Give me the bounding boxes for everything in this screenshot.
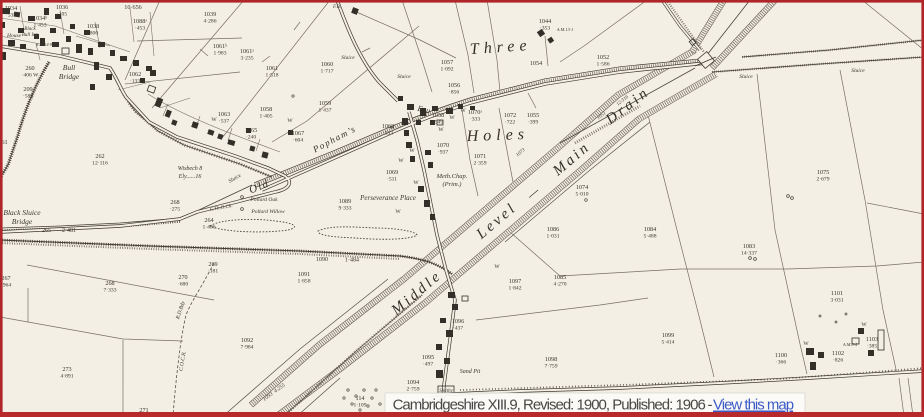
- svg-text:W: W: [494, 264, 500, 270]
- svg-text:Bridge: Bridge: [59, 72, 80, 81]
- svg-text:W: W: [803, 341, 809, 347]
- svg-text:House: House: [6, 33, 22, 39]
- svg-text:1061ᵇ: 1061ᵇ: [213, 43, 227, 50]
- svg-text:·680: ·680: [178, 282, 188, 288]
- svg-text:·497: ·497: [423, 362, 433, 368]
- svg-text:2·481: 2·481: [62, 228, 76, 234]
- svg-text:1103: 1103: [866, 336, 878, 343]
- svg-text:1034: 1034: [5, 5, 17, 12]
- svg-text:·366: ·366: [776, 360, 786, 366]
- svg-text:·133: ·133: [130, 79, 140, 85]
- svg-text:1·453: 1·453: [33, 23, 46, 29]
- svg-text:Sluice: Sluice: [739, 74, 753, 80]
- svg-text:10·656: 10·656: [124, 4, 142, 11]
- svg-text:1084: 1084: [644, 226, 656, 233]
- svg-text:Sluice: Sluice: [397, 74, 411, 80]
- svg-text:1058: 1058: [260, 106, 272, 113]
- svg-text:1060: 1060: [321, 61, 333, 68]
- svg-text:1058: 1058: [432, 112, 444, 119]
- svg-text:·181: ·181: [208, 269, 218, 275]
- svg-text:W: W: [211, 117, 217, 123]
- svg-text:F.B.: F.B.: [332, 5, 341, 10]
- svg-text:1054: 1054: [530, 60, 542, 67]
- svg-text:1094: 1094: [407, 379, 419, 386]
- svg-text:·453: ·453: [135, 26, 145, 32]
- svg-text:1052: 1052: [597, 54, 609, 61]
- svg-text:·105: ·105: [57, 12, 67, 18]
- svg-text:W: W: [398, 158, 404, 164]
- svg-text:Pollard Willow: Pollard Willow: [250, 209, 285, 215]
- svg-text:Meth.Chap.: Meth.Chap.: [436, 173, 468, 180]
- svg-text:·406 W: ·406 W: [22, 73, 40, 79]
- svg-text:1·983: 1·983: [213, 51, 226, 57]
- svg-text:·537: ·537: [6, 13, 16, 19]
- svg-text:262: 262: [95, 153, 104, 160]
- svg-text:Bridge: Bridge: [12, 217, 33, 226]
- svg-text:·275: ·275: [170, 207, 180, 213]
- svg-text:1083: 1083: [743, 243, 755, 250]
- svg-text:W: W: [409, 148, 415, 154]
- svg-text:1100: 1100: [775, 352, 787, 359]
- svg-text:Ely......16: Ely......16: [178, 174, 202, 180]
- svg-text:1096: 1096: [452, 318, 464, 325]
- svg-text:265: 265: [42, 228, 51, 234]
- svg-text:268: 268: [170, 199, 179, 206]
- svg-text:1067: 1067: [292, 130, 304, 137]
- svg-text:1044: 1044: [539, 18, 551, 25]
- svg-text:269: 269: [208, 261, 217, 268]
- svg-text:1038: 1038: [87, 23, 99, 30]
- svg-text:114: 114: [355, 395, 364, 402]
- svg-text:1092: 1092: [241, 337, 253, 344]
- svg-text:1091: 1091: [298, 271, 310, 278]
- svg-text:1061ᵃ: 1061ᵃ: [240, 48, 254, 55]
- svg-text:1057: 1057: [441, 59, 453, 66]
- svg-text:View this map: View this map: [713, 397, 794, 414]
- svg-text:W: W: [389, 125, 395, 131]
- svg-text:1·437: 1·437: [318, 108, 331, 114]
- svg-text:1·858: 1·858: [297, 279, 310, 285]
- svg-text:1075: 1075: [817, 169, 829, 176]
- svg-text:1063: 1063: [218, 111, 230, 118]
- svg-text:268: 268: [105, 280, 114, 287]
- svg-text:·333: ·333: [470, 117, 480, 123]
- svg-text:W: W: [861, 322, 867, 328]
- svg-text:2·759: 2·759: [406, 387, 419, 393]
- svg-text:7·984: 7·984: [240, 345, 253, 351]
- svg-text:(Prim.): (Prim.): [443, 181, 462, 188]
- svg-text:264: 264: [204, 217, 213, 224]
- svg-text:273: 273: [62, 366, 71, 373]
- svg-text:5·010: 5·010: [575, 192, 588, 198]
- svg-text:Cambridgeshire XIII.9, Revised: Cambridgeshire XIII.9, Revised: 1900, Pu…: [393, 397, 706, 414]
- svg-text:5·414: 5·414: [661, 340, 674, 346]
- svg-text:Sluice: Sluice: [851, 68, 865, 74]
- svg-text:W: W: [395, 209, 401, 215]
- svg-text:·722: ·722: [505, 120, 515, 126]
- svg-text:1074: 1074: [576, 184, 588, 191]
- svg-text:1098: 1098: [545, 356, 557, 363]
- svg-text:9·333: 9·333: [338, 206, 351, 212]
- svg-text:1·405: 1·405: [259, 114, 272, 120]
- svg-text:1061: 1061: [266, 65, 278, 72]
- svg-text:1090: 1090: [316, 257, 328, 263]
- svg-text:4·891: 4·891: [60, 374, 73, 380]
- svg-text:1039: 1039: [204, 11, 216, 18]
- svg-text:1036: 1036: [56, 4, 68, 11]
- svg-text:1·518: 1·518: [265, 73, 278, 79]
- svg-text:1062: 1062: [129, 71, 141, 78]
- svg-text:260: 260: [25, 65, 34, 72]
- svg-text:1097: 1097: [509, 278, 521, 285]
- svg-text:·399: ·399: [528, 120, 538, 126]
- svg-text:A.M.8·4: A.M.8·4: [842, 342, 858, 347]
- svg-text:Black Sluice: Black Sluice: [3, 208, 41, 217]
- svg-text:1·586: 1·586: [596, 62, 609, 68]
- svg-text:1059: 1059: [319, 100, 331, 107]
- svg-text:1070ᵃ: 1070ᵃ: [468, 109, 482, 116]
- svg-text:14·337: 14·337: [741, 251, 757, 257]
- svg-text:·549: ·549: [433, 120, 443, 126]
- svg-text:1088ᵃ: 1088ᵃ: [133, 18, 147, 25]
- svg-text:1089: 1089: [339, 198, 351, 205]
- svg-text:4·270: 4·270: [553, 282, 566, 288]
- svg-text:W: W: [287, 118, 293, 124]
- svg-text:1101: 1101: [831, 290, 843, 297]
- svg-text:-: -: [708, 397, 713, 414]
- svg-text:·604: ·604: [293, 138, 303, 144]
- svg-text:A.M.13·1: A.M.13·1: [556, 27, 574, 32]
- svg-text:1034ᵇ: 1034ᵇ: [33, 15, 47, 22]
- svg-text:·511: ·511: [387, 177, 397, 183]
- svg-text:Holes: Holes: [465, 126, 529, 145]
- svg-text:7·333: 7·333: [103, 288, 116, 294]
- svg-text:·537: ·537: [219, 119, 229, 125]
- svg-text:·588: ·588: [23, 94, 33, 100]
- svg-text:1085: 1085: [554, 274, 566, 281]
- svg-text:2·359: 2·359: [473, 161, 486, 167]
- svg-text:1069: 1069: [386, 169, 398, 176]
- svg-text:·800: ·800: [88, 31, 98, 37]
- svg-text:267: 267: [1, 275, 10, 282]
- svg-text:1102: 1102: [832, 350, 844, 357]
- svg-text:4·286: 4·286: [203, 19, 216, 25]
- svg-text:1·486: 1·486: [202, 225, 215, 231]
- svg-text:Sluice: Sluice: [341, 55, 355, 61]
- svg-text:W: W: [413, 180, 419, 186]
- svg-text:209: 209: [23, 86, 32, 93]
- svg-text:1065: 1065: [245, 127, 257, 134]
- svg-text:·240: ·240: [246, 135, 256, 141]
- svg-text:3·235: 3·235: [240, 56, 253, 62]
- svg-text:Bull: Bull: [63, 63, 76, 72]
- svg-text:Bull Inn: Bull Inn: [22, 33, 39, 38]
- svg-text:1·842: 1·842: [508, 286, 521, 292]
- svg-text:W: W: [438, 127, 444, 133]
- svg-text:5·488: 5·488: [643, 234, 656, 240]
- svg-text:3·031: 3·031: [830, 298, 843, 304]
- svg-text:W: W: [449, 115, 455, 121]
- svg-text:Wisbech 8: Wisbech 8: [178, 166, 203, 172]
- svg-text:Perseverance Place: Perseverance Place: [359, 194, 416, 202]
- svg-text:2·679: 2·679: [816, 177, 829, 183]
- svg-text:Sand Pit: Sand Pit: [460, 369, 481, 375]
- svg-text:270: 270: [178, 274, 187, 281]
- svg-text:·937: ·937: [438, 150, 448, 156]
- svg-text:1099: 1099: [662, 332, 674, 339]
- svg-text:·353: ·353: [540, 26, 550, 32]
- svg-text:1095: 1095: [422, 354, 434, 361]
- svg-text:1072: 1072: [504, 112, 516, 119]
- svg-text:1070: 1070: [437, 142, 449, 149]
- svg-text:1·717: 1·717: [320, 69, 333, 75]
- svg-text:7·759: 7·759: [544, 364, 557, 370]
- svg-text:1055: 1055: [527, 112, 539, 119]
- svg-text:8.M.14·9: 8.M.14·9: [36, 42, 53, 47]
- svg-text:1056: 1056: [448, 82, 460, 89]
- svg-text:·856: ·856: [449, 90, 459, 96]
- svg-text:1071: 1071: [474, 153, 486, 160]
- svg-text:1·092: 1·092: [440, 67, 453, 73]
- svg-text:·437: ·437: [453, 326, 463, 332]
- svg-text:·385: ·385: [867, 344, 877, 350]
- svg-text:1086: 1086: [547, 226, 559, 233]
- svg-text:12·116: 12·116: [92, 161, 108, 167]
- svg-text:Pollard Oak: Pollard Oak: [249, 197, 278, 203]
- svg-text:1·109: 1·109: [353, 403, 366, 409]
- svg-text:W: W: [460, 108, 466, 114]
- svg-text:1·031: 1·031: [546, 234, 559, 240]
- svg-text:·533: ·533: [383, 131, 393, 137]
- svg-text:1·484: 1·484: [345, 258, 359, 264]
- svg-text:·826: ·826: [833, 358, 843, 364]
